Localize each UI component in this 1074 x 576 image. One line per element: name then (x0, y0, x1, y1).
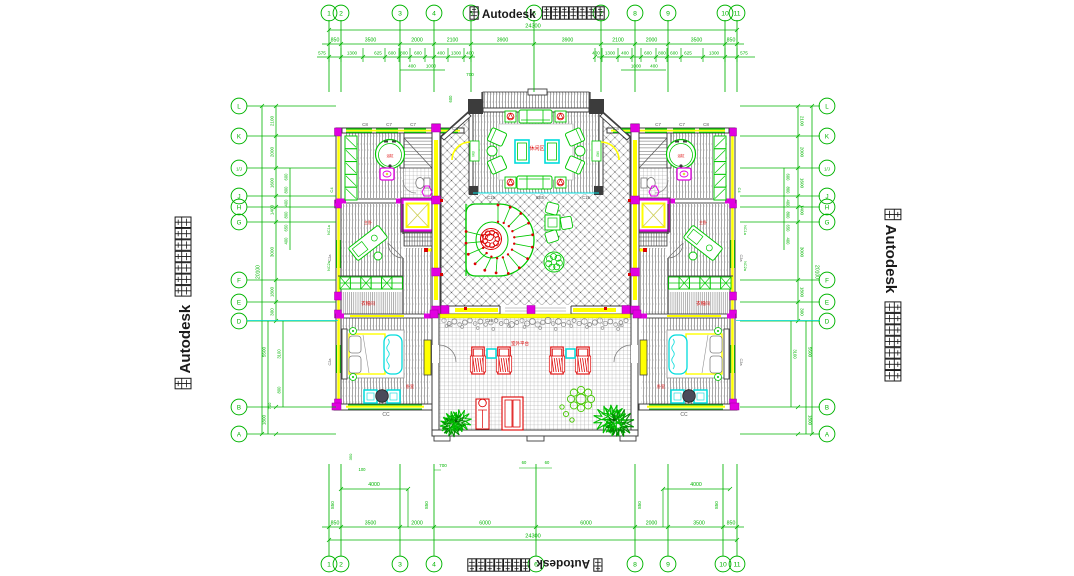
svg-text:4000: 4000 (368, 482, 380, 488)
svg-text:400: 400 (592, 51, 600, 56)
svg-text:8: 8 (633, 561, 637, 568)
svg-text:Autodesk: Autodesk (536, 557, 590, 571)
svg-text:650: 650 (786, 225, 791, 233)
svg-text:D: D (825, 318, 830, 325)
svg-text:1000: 1000 (426, 64, 437, 69)
svg-text:2000: 2000 (411, 38, 423, 44)
svg-text:1600: 1600 (270, 177, 275, 188)
svg-text:1300: 1300 (605, 51, 616, 56)
svg-text:3: 3 (398, 561, 402, 568)
svg-text:60: 60 (545, 460, 550, 465)
svg-text:6000: 6000 (479, 521, 491, 527)
svg-text:2: 2 (339, 10, 343, 17)
svg-text:850: 850 (637, 501, 642, 509)
svg-text:800: 800 (284, 211, 289, 219)
svg-text:8: 8 (633, 10, 637, 17)
svg-text:1800: 1800 (808, 415, 813, 426)
svg-text:C7: C7 (386, 122, 392, 127)
svg-text:700: 700 (466, 72, 474, 77)
svg-text:C4: C4 (737, 187, 742, 193)
svg-text:1600: 1600 (800, 178, 805, 189)
svg-text:650: 650 (284, 224, 289, 232)
svg-text:1300: 1300 (451, 51, 462, 56)
svg-text:CB5: CB5 (536, 195, 545, 200)
svg-text:3: 3 (398, 10, 402, 17)
svg-text:浴缸: 浴缸 (678, 153, 686, 158)
svg-text:600: 600 (284, 173, 289, 181)
svg-text:3500: 3500 (693, 521, 705, 527)
svg-text:C15: C15 (582, 195, 590, 200)
svg-text:100: 100 (359, 467, 367, 472)
svg-text:60: 60 (522, 460, 527, 465)
svg-text:5500: 5500 (262, 346, 267, 357)
svg-text:400: 400 (786, 200, 791, 208)
svg-text:H: H (825, 204, 829, 211)
svg-text:B: B (237, 404, 241, 411)
svg-text:800: 800 (277, 386, 282, 394)
svg-text:NC2a: NC2a (327, 260, 331, 271)
svg-text:800: 800 (658, 51, 666, 56)
svg-text:2100: 2100 (447, 38, 459, 44)
svg-text:衣帽间: 衣帽间 (696, 300, 710, 307)
svg-text:9: 9 (666, 10, 670, 17)
svg-text:NC1a: NC1a (743, 225, 747, 236)
svg-text:M2: M2 (618, 324, 623, 328)
svg-text:B: B (825, 404, 829, 411)
svg-text:NC1a: NC1a (327, 224, 331, 235)
svg-text:600: 600 (448, 95, 453, 103)
svg-text:850: 850 (424, 501, 429, 509)
svg-text:4000: 4000 (690, 482, 702, 488)
svg-text:E: E (825, 299, 829, 306)
svg-text:850: 850 (331, 38, 340, 44)
svg-text:3000: 3000 (800, 247, 805, 258)
svg-text:400: 400 (408, 64, 416, 69)
svg-text:20100: 20100 (256, 265, 262, 279)
svg-text:400: 400 (284, 199, 289, 207)
svg-text:浴缸: 浴缸 (387, 153, 395, 158)
svg-text:700: 700 (439, 463, 447, 468)
svg-text:1300: 1300 (347, 51, 358, 56)
svg-text:575: 575 (740, 51, 748, 56)
svg-text:1/J: 1/J (824, 166, 830, 171)
svg-text:1800: 1800 (800, 287, 805, 298)
svg-text:800: 800 (284, 186, 289, 194)
svg-text:3500: 3500 (365, 521, 377, 527)
svg-text:卧室: 卧室 (406, 383, 414, 389)
svg-text:2100: 2100 (612, 38, 624, 44)
svg-text:衣帽间: 衣帽间 (361, 300, 375, 307)
svg-text:主卧: 主卧 (364, 219, 372, 225)
svg-text:C7: C7 (679, 122, 685, 127)
svg-text:G: G (825, 219, 830, 226)
svg-text:850: 850 (727, 521, 736, 527)
svg-text:600: 600 (644, 51, 652, 56)
svg-text:850: 850 (727, 38, 736, 44)
svg-text:1400: 1400 (270, 204, 275, 215)
svg-text:1/J: 1/J (236, 166, 242, 171)
svg-text:1400: 1400 (800, 205, 805, 216)
svg-text:850: 850 (330, 501, 335, 509)
svg-text:1300: 1300 (709, 51, 720, 56)
svg-text:G: G (237, 219, 242, 226)
svg-text:800: 800 (786, 187, 791, 195)
svg-text:C4: C4 (329, 187, 334, 193)
svg-text:1000: 1000 (631, 64, 642, 69)
svg-text:Autodesk: Autodesk (177, 304, 194, 373)
svg-text:C2a: C2a (328, 358, 332, 366)
svg-text:400: 400 (466, 51, 474, 56)
svg-text:2000: 2000 (646, 38, 658, 44)
svg-text:E: E (237, 299, 241, 306)
svg-text:Autodesk: Autodesk (882, 225, 899, 294)
svg-text:主卧: 主卧 (699, 219, 707, 225)
svg-text:1800: 1800 (270, 286, 275, 297)
svg-text:2100: 2100 (800, 116, 805, 127)
svg-text:M3: M3 (471, 150, 476, 156)
svg-text:850: 850 (331, 521, 340, 527)
svg-text:2: 2 (339, 561, 343, 568)
svg-text:6000: 6000 (580, 521, 592, 527)
svg-text:600: 600 (786, 174, 791, 182)
svg-text:3000: 3000 (270, 246, 275, 257)
svg-text:L: L (825, 103, 829, 110)
svg-text:卧室: 卧室 (657, 383, 665, 389)
svg-text:300: 300 (800, 308, 805, 316)
svg-text:625: 625 (374, 51, 382, 56)
svg-text:400: 400 (437, 51, 445, 56)
svg-text:400: 400 (284, 237, 289, 245)
svg-text:20100: 20100 (814, 265, 820, 279)
svg-text:600: 600 (388, 51, 396, 56)
svg-text:F: F (237, 277, 241, 284)
svg-text:4: 4 (432, 10, 436, 17)
svg-text:4: 4 (432, 561, 436, 568)
svg-text:C2a: C2a (739, 255, 743, 263)
svg-text:3100: 3100 (793, 349, 798, 359)
svg-text:2100: 2100 (270, 115, 275, 126)
svg-text:2000: 2000 (646, 521, 658, 527)
svg-text:NC2a: NC2a (743, 261, 747, 272)
svg-text:C8: C8 (362, 122, 368, 127)
svg-text:400: 400 (621, 51, 629, 56)
svg-text:休闲区: 休闲区 (529, 145, 544, 152)
svg-text:F: F (825, 277, 829, 284)
svg-text:11: 11 (733, 10, 740, 17)
svg-text:C2a: C2a (328, 254, 332, 262)
svg-text:2000: 2000 (270, 146, 275, 157)
svg-text:3500: 3500 (365, 38, 377, 44)
svg-text:3500: 3500 (691, 38, 703, 44)
svg-text:575: 575 (318, 51, 326, 56)
svg-text:11: 11 (733, 561, 740, 568)
svg-text:C7: C7 (655, 122, 661, 127)
svg-text:1800: 1800 (262, 414, 267, 425)
svg-text:M3: M3 (596, 151, 601, 157)
svg-text:850: 850 (714, 501, 719, 509)
svg-text:5500: 5500 (808, 347, 813, 358)
svg-text:9: 9 (666, 561, 670, 568)
svg-text:2000: 2000 (800, 147, 805, 158)
svg-text:3900: 3900 (497, 38, 509, 44)
svg-text:625: 625 (684, 51, 692, 56)
svg-text:C12: C12 (485, 318, 493, 323)
svg-text:H: H (237, 204, 241, 211)
svg-text:600: 600 (670, 51, 678, 56)
svg-text:C8: C8 (613, 126, 619, 131)
svg-text:400: 400 (786, 238, 791, 246)
svg-text:室外平台: 室外平台 (511, 340, 529, 347)
svg-text:350: 350 (348, 453, 353, 460)
svg-text:3900: 3900 (562, 38, 574, 44)
svg-text:10: 10 (719, 561, 727, 568)
svg-text:1: 1 (327, 561, 331, 568)
svg-text:C15: C15 (487, 195, 495, 200)
svg-text:400: 400 (650, 64, 658, 69)
svg-text:Autodesk: Autodesk (482, 7, 536, 21)
svg-text:800: 800 (786, 212, 791, 220)
svg-text:24300: 24300 (525, 534, 541, 540)
svg-text:3100: 3100 (277, 349, 282, 359)
svg-text:600: 600 (414, 51, 422, 56)
svg-text:D: D (237, 318, 242, 325)
svg-text:C2a: C2a (739, 359, 743, 367)
svg-text:800: 800 (400, 51, 408, 56)
svg-text:300: 300 (270, 308, 275, 316)
svg-text:700: 700 (267, 402, 272, 409)
svg-text:L: L (237, 103, 241, 110)
svg-text:CC: CC (382, 412, 390, 418)
svg-text:C8: C8 (703, 122, 709, 127)
svg-text:CC: CC (680, 412, 688, 418)
svg-text:2000: 2000 (411, 521, 423, 527)
svg-text:M2: M2 (447, 324, 452, 328)
svg-text:10: 10 (721, 10, 729, 17)
svg-text:C8: C8 (452, 126, 458, 131)
svg-text:24300: 24300 (525, 24, 541, 30)
svg-text:1: 1 (327, 10, 331, 17)
svg-text:C7: C7 (410, 122, 416, 127)
